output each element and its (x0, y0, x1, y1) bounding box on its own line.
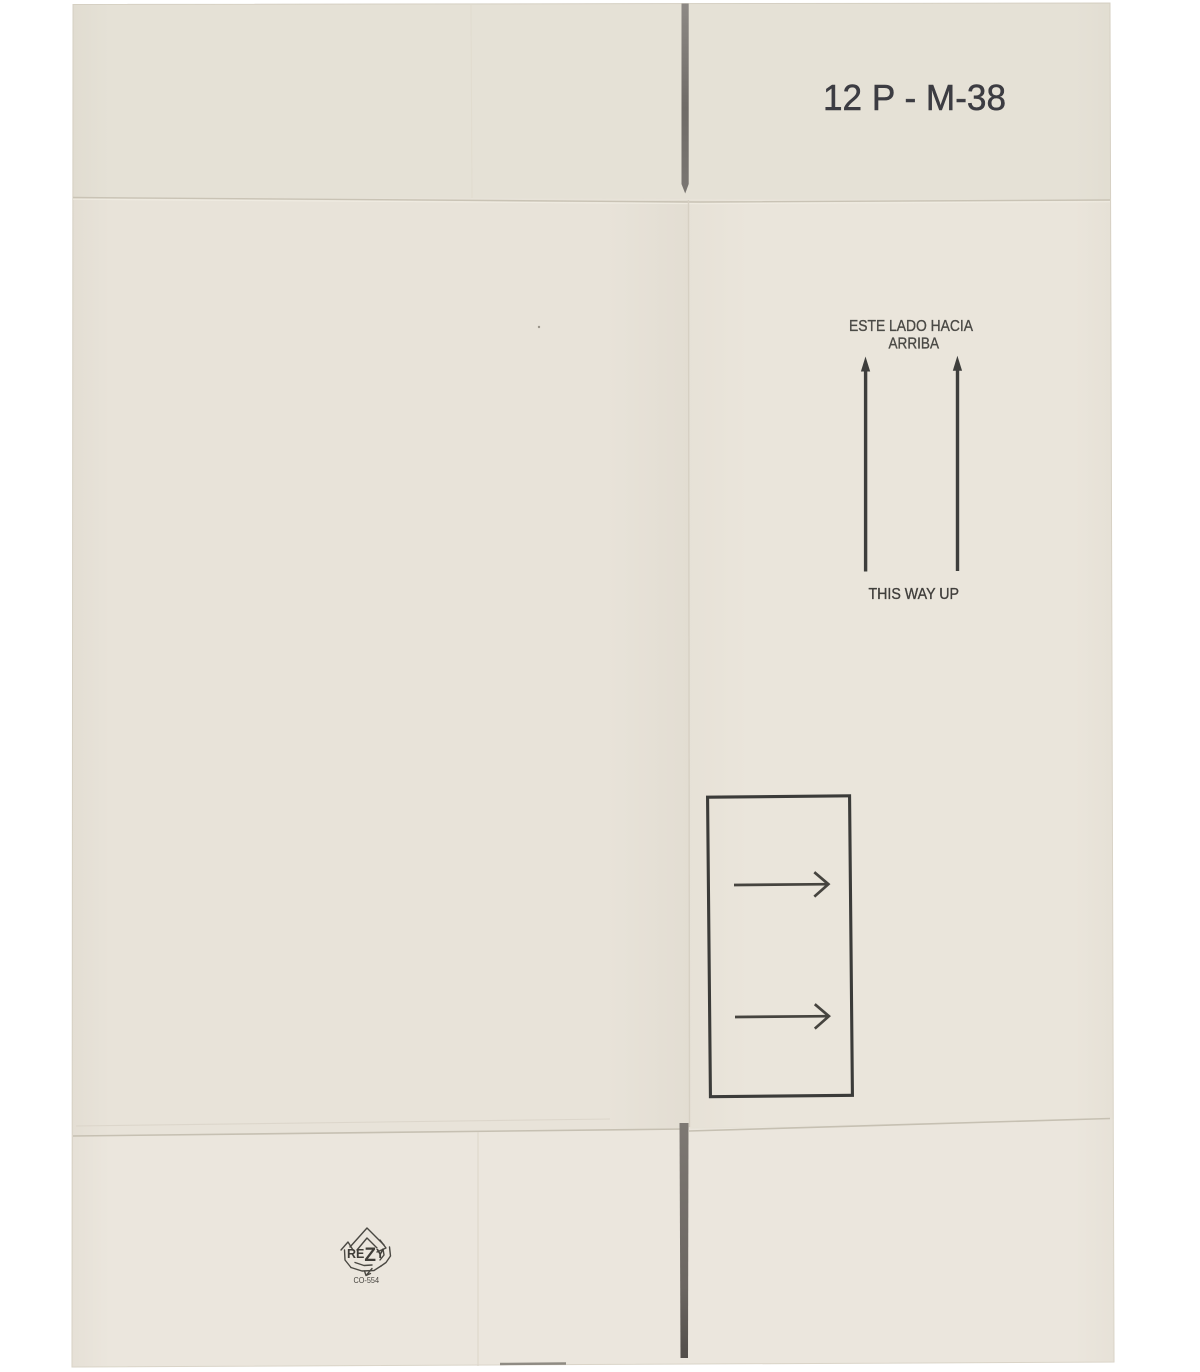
svg-text:CO-554: CO-554 (354, 1275, 380, 1285)
svg-text:ARRIBA: ARRIBA (889, 336, 940, 353)
svg-text:ESTE LADO HACIA: ESTE LADO HACIA (849, 318, 973, 335)
svg-text:THIS WAY UP: THIS WAY UP (869, 586, 960, 603)
svg-text:12 P - M-38: 12 P - M-38 (823, 77, 1006, 118)
